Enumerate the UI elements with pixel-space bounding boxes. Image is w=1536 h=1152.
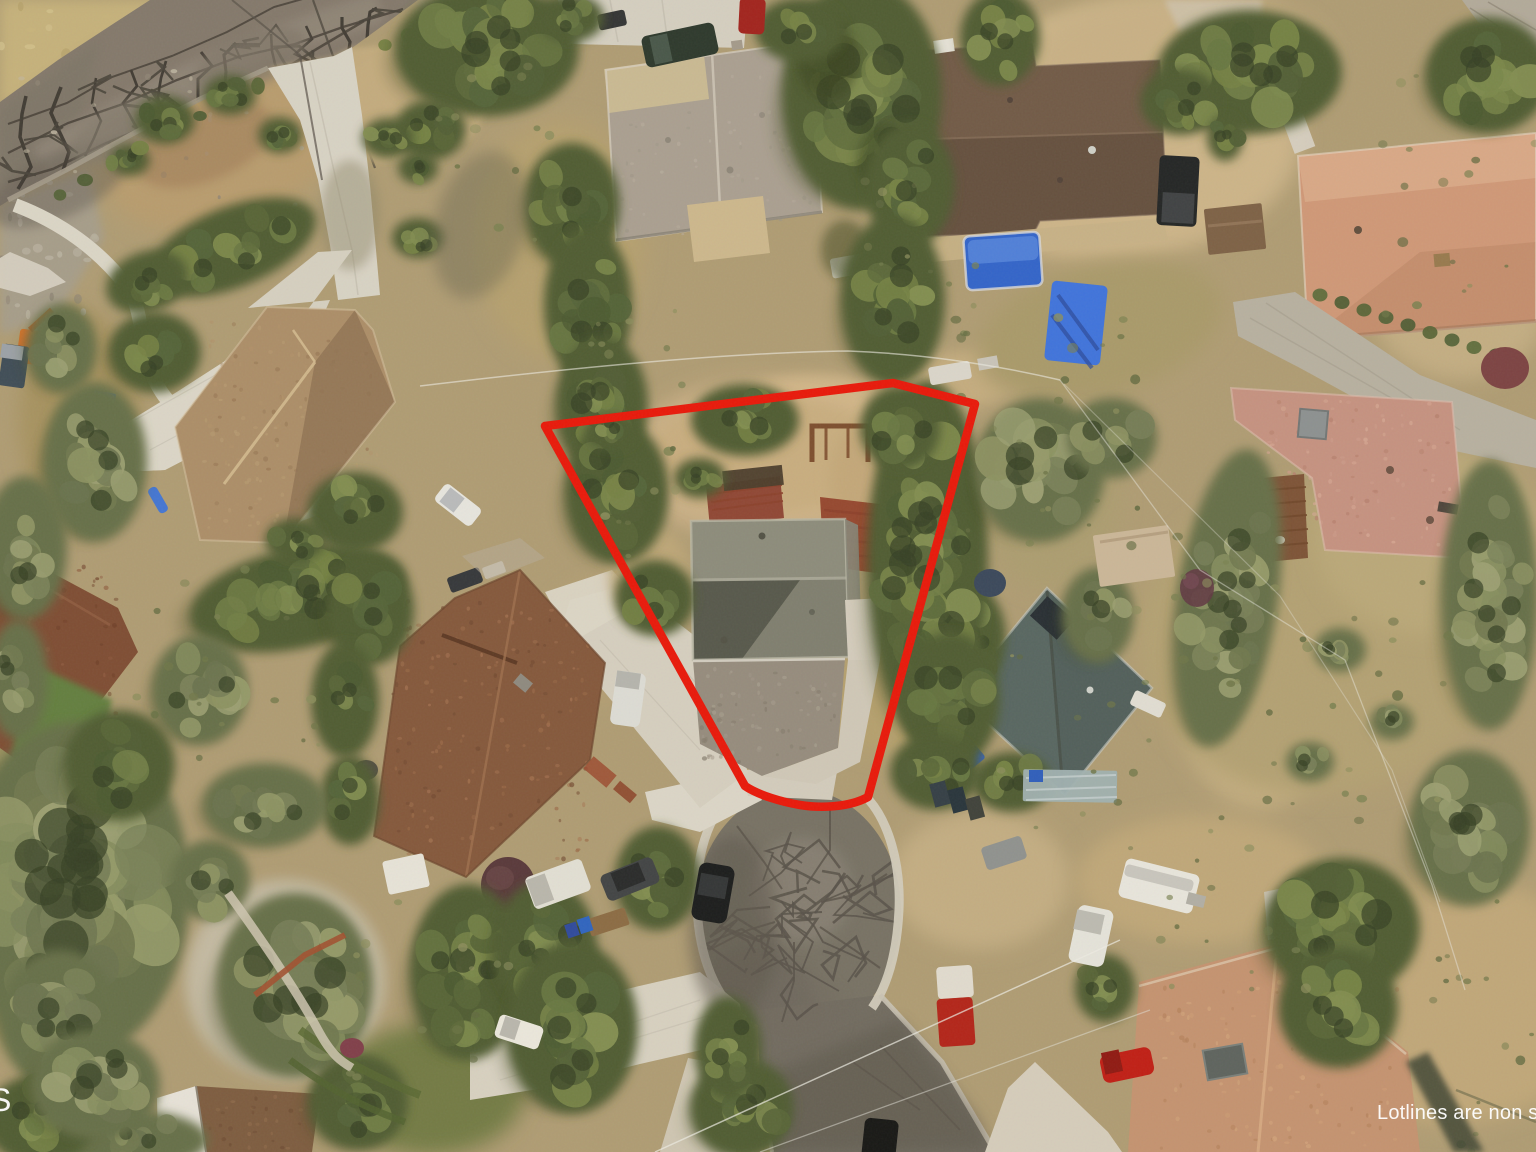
svg-text:S: S bbox=[0, 1082, 11, 1118]
svg-text:Lotlines are non s: Lotlines are non s bbox=[1377, 1102, 1536, 1124]
